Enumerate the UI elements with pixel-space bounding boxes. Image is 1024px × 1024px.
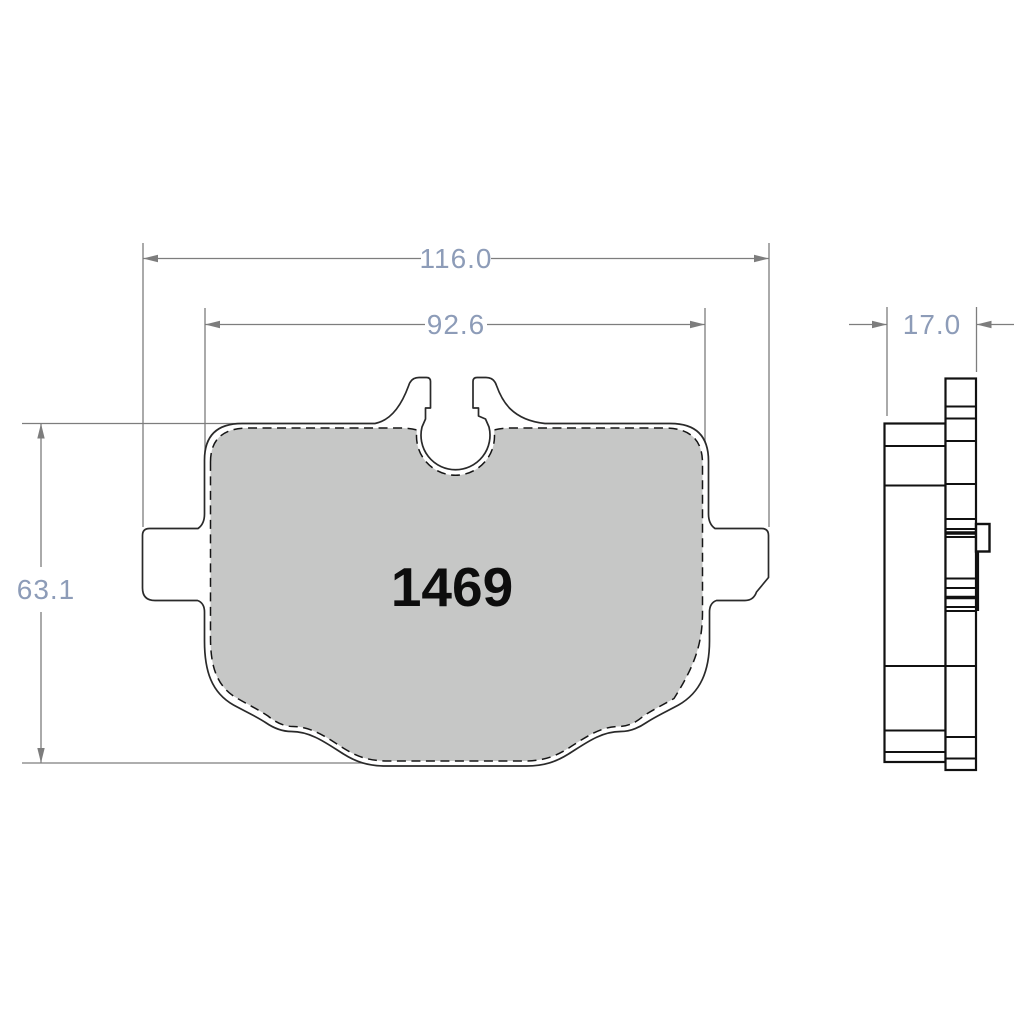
arrow-right-icon — [872, 321, 887, 328]
arrow-right-icon — [690, 321, 705, 328]
side-friction-profile — [885, 424, 946, 763]
arrow-left-icon — [977, 321, 992, 328]
side-backing-profile — [946, 379, 977, 771]
side-sensor-tab — [976, 524, 990, 552]
arrow-right-icon — [754, 255, 769, 262]
side-view — [885, 379, 990, 771]
dimension-thickness: 17.0 — [849, 307, 1014, 416]
arrow-down-icon — [37, 748, 44, 763]
arrow-left-icon — [143, 255, 158, 262]
brake-pad-technical-drawing: 116.0 92.6 63.1 17.0 1469 — [0, 0, 1024, 1024]
dimension-label-height: 63.1 — [17, 574, 76, 605]
dimension-label-thickness: 17.0 — [903, 309, 962, 340]
dimension-label-overall-width: 116.0 — [420, 243, 493, 274]
arrow-left-icon — [205, 321, 220, 328]
dimension-label-friction-width: 92.6 — [427, 309, 486, 340]
front-view: 1469 — [143, 378, 769, 767]
drawing-svg: 116.0 92.6 63.1 17.0 1469 — [0, 0, 1024, 1024]
arrow-up-icon — [37, 424, 44, 439]
part-number-label: 1469 — [391, 556, 513, 618]
